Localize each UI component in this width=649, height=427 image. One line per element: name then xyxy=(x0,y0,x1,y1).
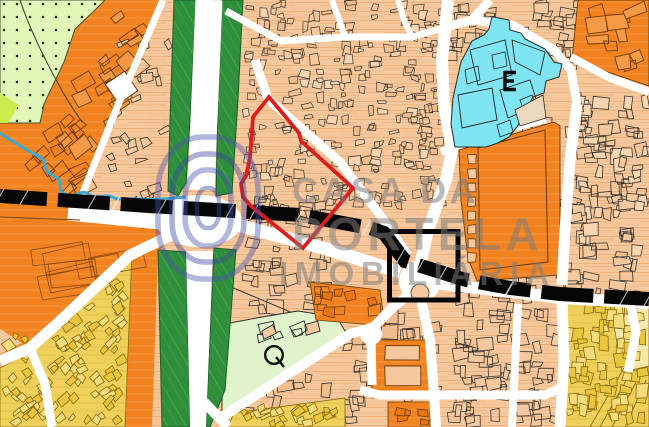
svg-text:IMOBILIÁRIA: IMOBILIÁRIA xyxy=(279,255,556,292)
svg-text:PORTELA: PORTELA xyxy=(292,208,543,260)
svg-text:CASA DA: CASA DA xyxy=(292,170,479,211)
